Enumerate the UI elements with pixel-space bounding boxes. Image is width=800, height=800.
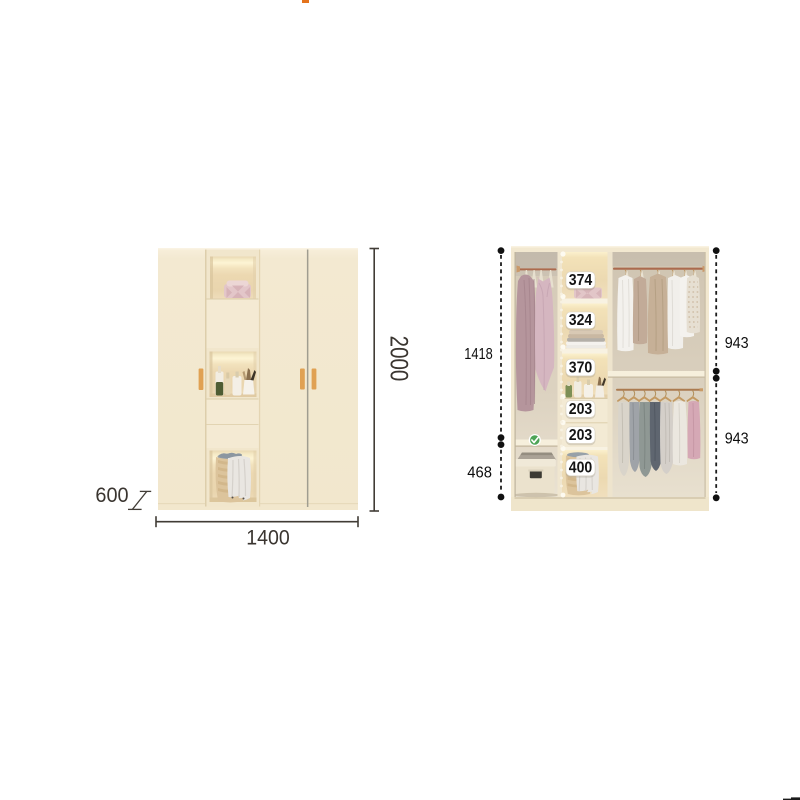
svg-text:943: 943 bbox=[725, 335, 749, 352]
svg-text:370: 370 bbox=[569, 359, 593, 376]
svg-text:203: 203 bbox=[569, 427, 593, 444]
svg-text:943: 943 bbox=[725, 431, 749, 448]
svg-text:324: 324 bbox=[569, 312, 593, 329]
svg-text:1418: 1418 bbox=[464, 346, 493, 363]
svg-text:400: 400 bbox=[569, 459, 593, 476]
svg-text:2000: 2000 bbox=[385, 336, 413, 382]
svg-text:600: 600 bbox=[95, 483, 128, 507]
svg-text:1400: 1400 bbox=[246, 527, 290, 550]
svg-text:468: 468 bbox=[467, 465, 492, 482]
svg-text:203: 203 bbox=[569, 401, 593, 418]
svg-text:374: 374 bbox=[569, 272, 593, 289]
